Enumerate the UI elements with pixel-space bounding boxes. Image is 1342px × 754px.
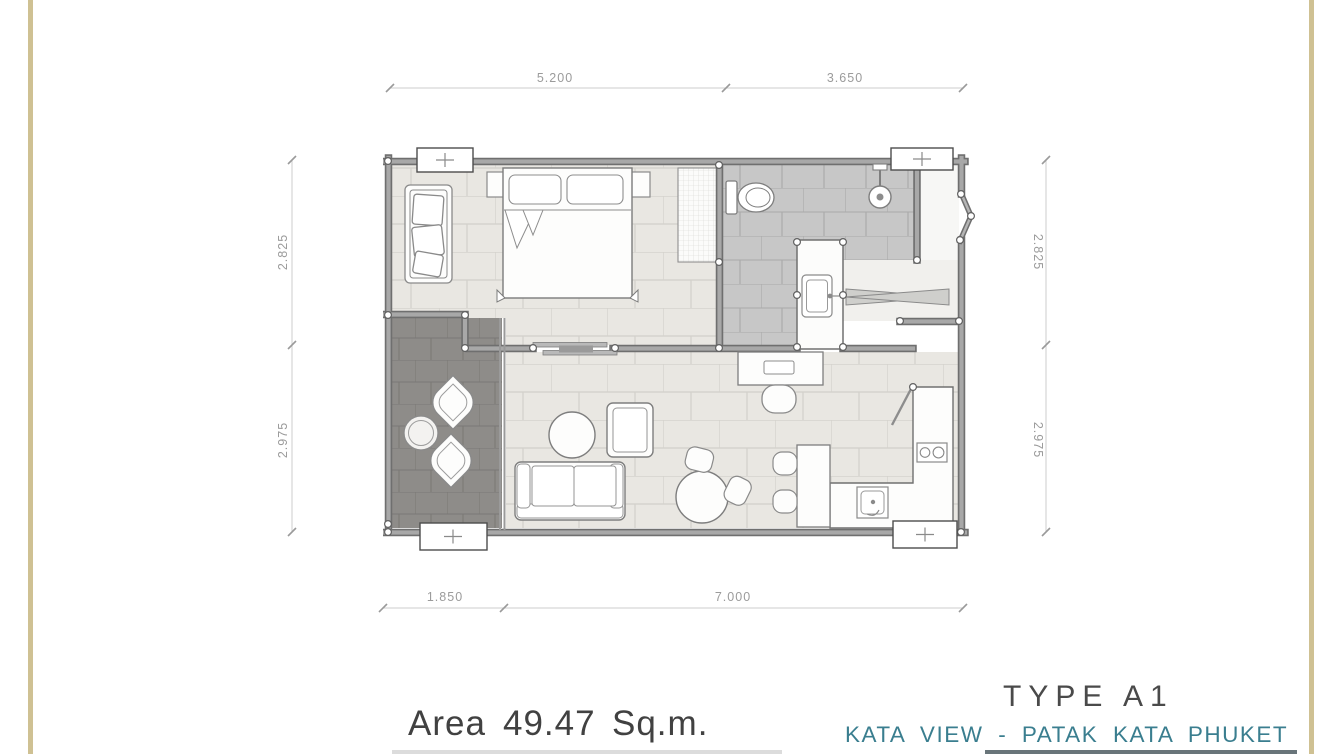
area-value: 49.47: [503, 704, 596, 744]
dimension-left-1: 2.825: [276, 212, 290, 292]
kitchen-sink: [857, 487, 888, 518]
toilet: [726, 181, 774, 214]
entry-floor: [917, 161, 959, 260]
dimension-left-2: 2.975: [276, 400, 290, 480]
dimension-right-1: 2.825: [1031, 212, 1045, 292]
column-marker: [891, 148, 953, 170]
dimension-top-1: 5.200: [515, 71, 595, 85]
column-marker: [893, 521, 957, 548]
balcony-table: [404, 416, 438, 450]
project-name: KATA VIEW - PATAK KATA PHUKET: [845, 722, 1288, 748]
room-floors: [392, 161, 959, 528]
coffee-table: [549, 412, 595, 458]
cooktop: [917, 443, 947, 462]
sofa: [515, 462, 625, 520]
column-marker: [420, 523, 487, 550]
nightstand-left: [487, 172, 505, 197]
dimension-right-2: 2.975: [1031, 400, 1045, 480]
vanity-island: [797, 240, 843, 349]
pillow: [567, 175, 623, 204]
desk-chair: [762, 385, 796, 413]
cropped-text-row: [985, 750, 1297, 754]
area-label: Area: [408, 704, 486, 744]
pillow: [509, 175, 561, 204]
armchair: [607, 403, 653, 457]
dimension-top-2: 3.650: [805, 71, 885, 85]
nightstand-right: [630, 172, 650, 197]
daybed: [405, 185, 452, 283]
chair: [773, 452, 797, 475]
double-bed: [497, 168, 638, 302]
area-unit: Sq.m.: [612, 704, 708, 744]
sliding-door: [533, 343, 617, 356]
chair: [773, 490, 797, 513]
cropped-text-row: [392, 750, 782, 754]
dimension-bottom-2: 7.000: [693, 590, 773, 604]
dimension-bottom-1: 1.850: [405, 590, 485, 604]
bedroom-closet: [678, 168, 717, 262]
column-marker: [417, 148, 473, 172]
page: 5.200 3.650 2.825 2.975 2.825 2.975 1.85…: [0, 0, 1342, 754]
unit-type-title: TYPE A1: [1003, 680, 1174, 714]
floorplan-drawing: [383, 140, 975, 555]
